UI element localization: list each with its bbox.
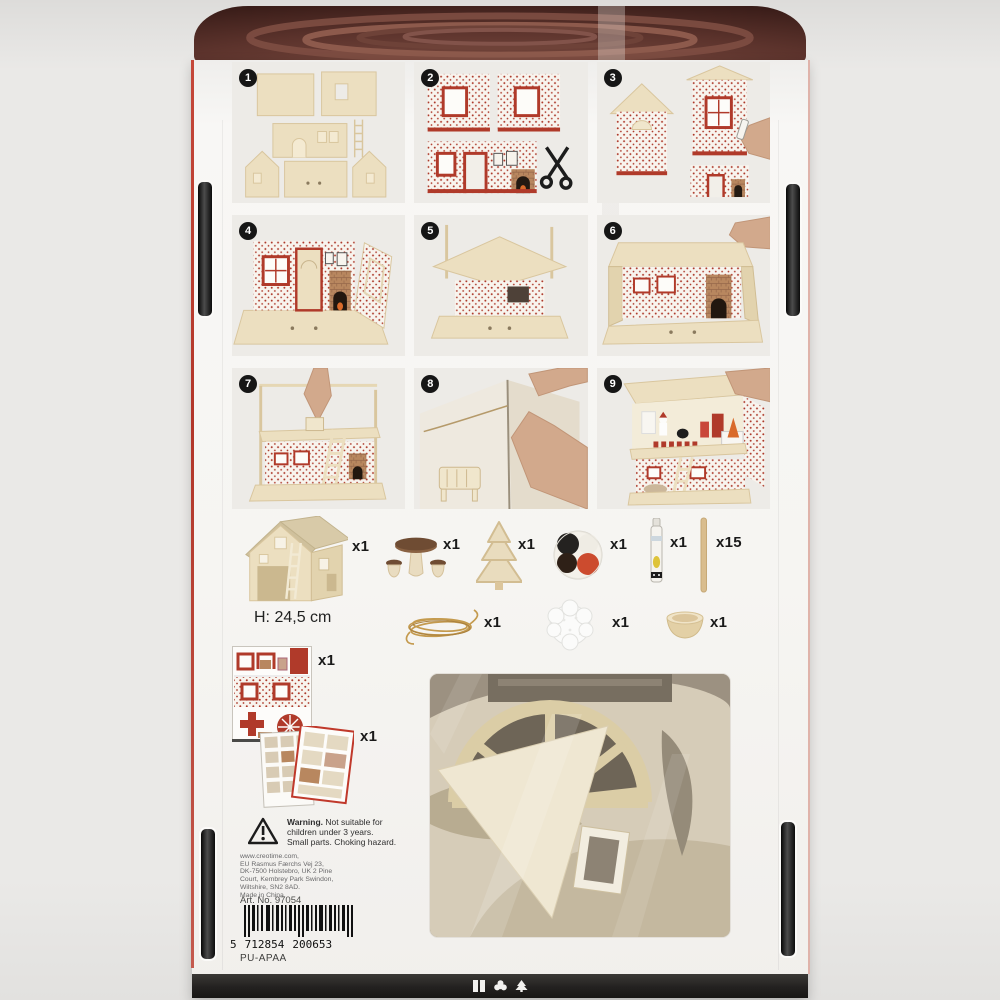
packing-code: PU-APAA (240, 953, 287, 964)
product-box-photo: 1 (0, 0, 1000, 1000)
safety-warning: Warning. Not suitable for children under… (248, 817, 396, 847)
glue-icon (646, 518, 667, 590)
step-1-illustration-wood-panels (232, 62, 405, 203)
step-8-illustration-string (414, 368, 587, 509)
step-7-illustration-ladder (232, 368, 405, 509)
house-count: x1 (352, 538, 369, 555)
house-icon (242, 516, 348, 606)
assembly-steps-grid: 1 (232, 62, 770, 509)
step-3-illustration-glue-walls (597, 62, 770, 203)
warning-text: Warning. Not suitable for children under… (287, 817, 396, 847)
house-height-label: H: 24,5 cm (254, 609, 374, 627)
packaging-box: 1 (192, 6, 808, 998)
step-panel-4: 4 (232, 215, 405, 356)
step-panel-3: 3 (597, 62, 770, 203)
scissors-icon (542, 147, 571, 188)
side-slot-top-left (198, 182, 212, 316)
logo-square-icon (473, 980, 486, 992)
stick-icon (700, 516, 708, 594)
step-panel-1: 1 (232, 62, 405, 203)
small-window-frame-piece (573, 826, 629, 894)
step-5-illustration-roof (414, 215, 587, 356)
step-9-illustration-decorated-house (597, 368, 770, 509)
rope-handle-icon (194, 6, 806, 62)
bowl-count: x1 (710, 614, 727, 631)
side-slot-bottom-right (781, 822, 795, 956)
booklet-count: x1 (360, 728, 377, 745)
address-line: www.creotime.com, (240, 853, 333, 861)
warning-line3: Small parts. Choking hazard. (287, 837, 396, 847)
address-line: Wiltshire, SN2 8AD. (240, 884, 333, 892)
box-red-edge-left (191, 60, 194, 968)
bowl-icon (666, 610, 704, 642)
step-panel-6: 6 (597, 215, 770, 356)
hand-icon (304, 368, 331, 422)
warning-triangle-icon (248, 817, 278, 845)
step-2-illustration-paper-walls (414, 62, 587, 203)
step-panel-7: 7 (232, 368, 405, 509)
box-red-edge-right (808, 60, 810, 974)
hand-icon-upper (529, 368, 587, 396)
side-slot-top-right (786, 184, 800, 316)
warning-bold: Warning. (287, 817, 323, 827)
table-count: x1 (443, 536, 460, 553)
step-number-badge: 9 (604, 375, 622, 393)
step-number-badge: 1 (239, 69, 257, 87)
warning-line2: children under 3 years. (287, 827, 396, 837)
address-line: DK-7500 Holstebro, UK 2 Pine (240, 868, 333, 876)
snow-icon (542, 596, 598, 652)
paint-icon (552, 530, 604, 580)
tree-count: x1 (518, 536, 535, 553)
step-number-badge: 4 (239, 222, 257, 240)
wooden-parts-visible-inside (430, 674, 730, 937)
step-panel-9: 9 (597, 368, 770, 509)
sticks-count: x15 (716, 534, 742, 551)
side-slot-bottom-left (201, 829, 215, 959)
barcode-bars (244, 905, 356, 937)
stickers-count: x1 (318, 652, 335, 669)
cardboard-crease-left (222, 120, 223, 970)
step-number-badge: 7 (239, 375, 257, 393)
packing-tape (598, 6, 625, 62)
barcode-group1: 712854 (245, 938, 285, 951)
twine-icon (402, 606, 480, 648)
box-lid (194, 6, 806, 62)
box-front-panel: 1 (192, 60, 808, 998)
table-set-icon (385, 534, 447, 582)
step-panel-2: 2 (414, 62, 587, 203)
barcode: 5 712854 200653 (230, 905, 380, 951)
address-line: EU Rasmus Færchs Vej 23, (240, 861, 333, 869)
box-bottom-strip (192, 974, 808, 998)
cardboard-crease-right (778, 120, 779, 970)
barcode-digits: 5 712854 200653 (230, 938, 380, 951)
barcode-group2: 200653 (292, 938, 332, 951)
step-panel-5: 5 (414, 215, 587, 356)
glue-count: x1 (670, 534, 687, 551)
paint-count: x1 (610, 536, 627, 553)
step-4-illustration-back-wall (232, 215, 405, 356)
warning-line1: Not suitable for (323, 817, 383, 827)
logo-tree-icon (515, 980, 528, 992)
instruction-booklet-icon (260, 726, 354, 810)
step-number-badge: 6 (604, 222, 622, 240)
twine-count: x1 (484, 614, 501, 631)
manufacturer-address: www.creotime.com, EU Rasmus Færchs Vej 2… (240, 853, 333, 899)
window-cutout (430, 674, 730, 937)
address-line: Court, Kembrey Park Swindon, (240, 876, 333, 884)
snow-count: x1 (612, 614, 629, 631)
barcode-prefix: 5 (230, 938, 237, 951)
logo-flower-icon (494, 980, 507, 992)
step-number-badge: 3 (604, 69, 622, 87)
step-6-illustration-ceiling (597, 215, 770, 356)
step-panel-8: 8 (414, 368, 587, 509)
tree-icon (476, 520, 522, 592)
